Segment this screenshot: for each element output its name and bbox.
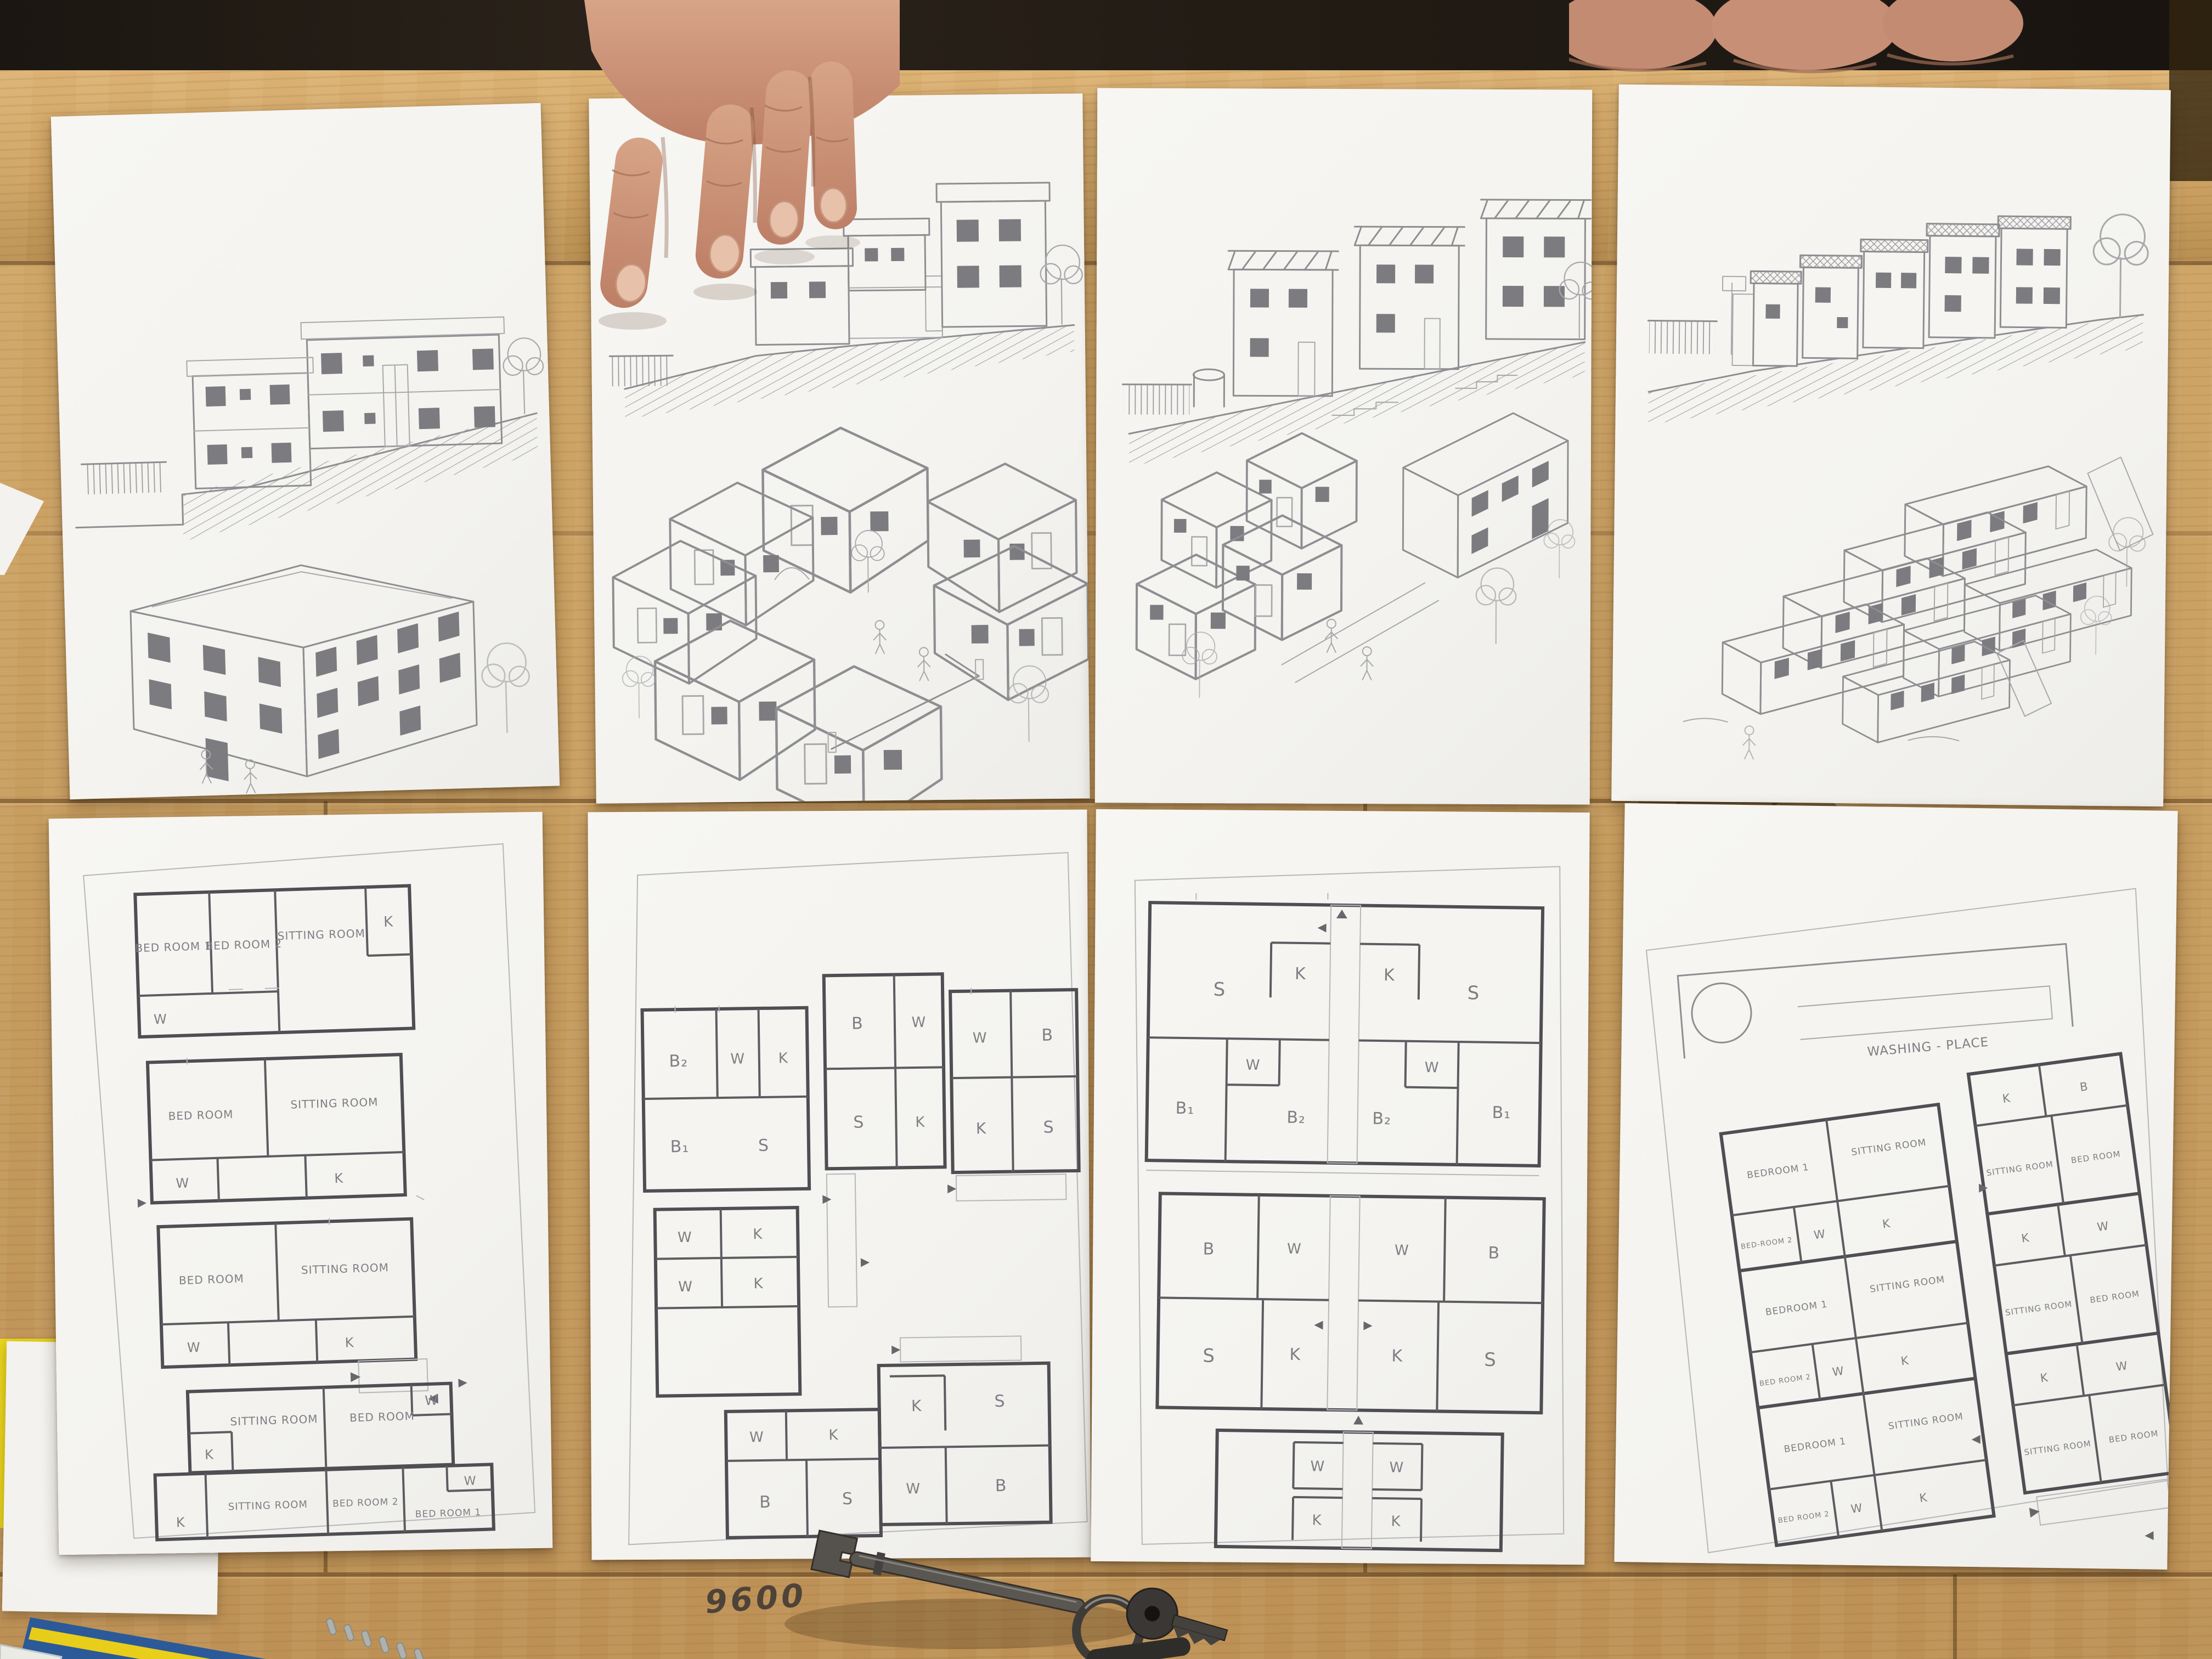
room-label: BED ROOM (2108, 1429, 2159, 1445)
perspective-sketch-1 (129, 559, 532, 798)
hand (527, 0, 900, 362)
room-label: K (753, 1276, 763, 1292)
room-label: K (345, 1335, 354, 1351)
room-label: BEDROOM 1 (1784, 1436, 1847, 1455)
room-label: K (1312, 1512, 1322, 1528)
room-label: K (1384, 966, 1395, 985)
stair (2036, 1479, 2171, 1525)
room-label: K (2039, 1371, 2049, 1385)
room-label: BED-ROOM 2 (1740, 1236, 1793, 1251)
room-label: BED ROOM 2 (1759, 1373, 1812, 1389)
room-label: W (187, 1340, 201, 1356)
room-label: W (1850, 1501, 1864, 1516)
stair (1328, 905, 1361, 1164)
room-label: W (911, 1014, 926, 1031)
room-label: K (1882, 1217, 1892, 1231)
room-label: SITTING ROOM (2023, 1438, 2091, 1457)
sketch-sheet-3 (1095, 88, 1593, 804)
room-label: W (2115, 1359, 2129, 1374)
room-label: K (1295, 964, 1306, 984)
floor-plan-1: BED ROOM 1 BED ROOM 2 SITTING ROOM K W B… (83, 843, 535, 1541)
room-label: BED ROOM (349, 1409, 415, 1425)
room-label: B (1041, 1026, 1053, 1045)
photo-of-architecture-sketches: 9600 (0, 0, 2212, 1659)
isometric-sketch-2 (612, 425, 1090, 803)
stair (827, 1174, 857, 1307)
room-label: SITTING ROOM (1888, 1411, 1964, 1432)
stair (956, 1174, 1066, 1201)
room-label: S (1213, 979, 1226, 1001)
floor-plan-sheet-1: BED ROOM 1 BED ROOM 2 SITTING ROOM K W B… (49, 812, 553, 1555)
room-label: W (1287, 1241, 1302, 1257)
room-label: S (1203, 1345, 1215, 1367)
second-hand-fingers (1569, 0, 2030, 101)
room-label: BEDROOM 1 (1746, 1162, 1810, 1181)
floor-plan-3: S K K S B₁ W B₂ B₂ W B₁ B W W B S K (1126, 861, 1573, 1551)
room-label: B (851, 1014, 864, 1033)
elevation-sketch-1 (71, 316, 548, 544)
room-label: K (911, 1397, 922, 1415)
room-label: K (915, 1114, 925, 1131)
tree-sketch (2093, 214, 2148, 318)
room-label: BED ROOM 1 (415, 1507, 482, 1520)
room-label: SITTING ROOM (1850, 1137, 1927, 1158)
room-label: W (1424, 1059, 1439, 1076)
room-label: S (1484, 1349, 1497, 1371)
room-label: W (425, 1392, 439, 1408)
floor-plan-2: B₂ W K B₁ S B W S K W B K S (619, 853, 1087, 1545)
room-label: W (1395, 1242, 1409, 1259)
room-label: S (853, 1113, 865, 1132)
floor-plan-4: WASHING - PLACE BEDROOM 1 SITTING ROOM B… (1645, 888, 2178, 1554)
room-label: BED ROOM 2 (1778, 1510, 1830, 1525)
room-label: B (995, 1476, 1007, 1496)
room-label: W (906, 1481, 921, 1497)
washing-place: WASHING - PLACE (1678, 944, 2074, 1075)
room-label: W (678, 1279, 693, 1295)
room-label: S (758, 1136, 770, 1155)
room-label: K (1918, 1491, 1928, 1505)
room-label: K (2021, 1231, 2030, 1245)
room-label: S (842, 1489, 854, 1509)
floor-plan-sheet-3: S K K S B₁ W B₂ B₂ W B₁ B W W B S K (1091, 809, 1590, 1565)
room-label: W (1246, 1057, 1261, 1074)
room-label: BED ROOM 2 (205, 937, 283, 952)
room-label: SITTING ROOM (301, 1261, 390, 1277)
table-corner-shadow (2169, 0, 2212, 181)
room-label: K (334, 1171, 344, 1187)
room-label: SITTING ROOM (2005, 1299, 2073, 1318)
room-label: K (205, 1447, 215, 1463)
room-label: W (176, 1175, 190, 1191)
stair (1342, 1432, 1373, 1549)
room-label: BED ROOM 1 (135, 939, 212, 955)
room-label: K (176, 1515, 186, 1531)
room-label: W (749, 1429, 764, 1446)
room-label: B (2079, 1080, 2089, 1094)
room-label: K (828, 1427, 838, 1443)
left-unit-strip: BEDROOM 1 SITTING ROOM BED-ROOM 2 W K BE… (1721, 1104, 1994, 1545)
key-bunch (757, 1520, 1229, 1659)
room-label: SITTING ROOM (228, 1499, 308, 1513)
room-label: W (1389, 1459, 1404, 1476)
room-label: W (2096, 1219, 2110, 1234)
room-label: K (1900, 1354, 1910, 1368)
room-label: BED ROOM (2070, 1149, 2121, 1165)
room-label: BED ROOM (2089, 1289, 2140, 1305)
room-label: B₁ (1175, 1099, 1194, 1118)
sketch-sheet-4 (1611, 84, 2171, 806)
room-label: K (2002, 1091, 2012, 1105)
room-label: B₁ (1492, 1103, 1511, 1122)
room-label: K (753, 1226, 763, 1243)
right-unit-strip: K B SITTING ROOM BED ROOM K W SITTING RO… (1968, 1054, 2178, 1527)
room-label: K (1289, 1345, 1301, 1364)
room-label: W (973, 1030, 988, 1046)
room-label: B₂ (669, 1052, 688, 1071)
room-label: W (678, 1229, 692, 1246)
room-label: K (1391, 1513, 1401, 1530)
floor-plan-sheet-4: WASHING - PLACE BEDROOM 1 SITTING ROOM B… (1614, 803, 2177, 1570)
floor-plan-sheet-2: B₂ W K B₁ S B W S K W B K S (588, 810, 1091, 1560)
room-label: B₂ (1372, 1109, 1391, 1128)
stair (1327, 1196, 1359, 1410)
windows (148, 633, 284, 793)
room-label: B₂ (1286, 1108, 1306, 1127)
room-label: B (1488, 1244, 1500, 1263)
room-label: W (464, 1474, 477, 1488)
room-label: BED ROOM (179, 1272, 244, 1287)
room-label: BED ROOM 2 (332, 1497, 399, 1510)
room-label: K (383, 913, 394, 930)
room-label: BEDROOM 1 (1765, 1299, 1829, 1318)
washing-place-label: WASHING - PLACE (1867, 1035, 1989, 1059)
room-label: S (1467, 982, 1480, 1004)
room-label: S (994, 1392, 1006, 1411)
spiral-notebook (0, 1575, 494, 1659)
room-label: K (976, 1119, 987, 1137)
sketch-sheet-1 (51, 103, 560, 799)
room-label: S (1043, 1118, 1054, 1137)
room-label: W (1310, 1458, 1325, 1475)
room-label: K (778, 1050, 788, 1066)
room-label: W (154, 1011, 168, 1027)
stair (900, 1336, 1022, 1362)
elevation-sketch-4 (1647, 210, 2148, 430)
room-label: SITTING ROOM (1869, 1274, 1945, 1295)
plank-joint (1953, 1575, 1957, 1659)
room-label: W (1813, 1227, 1827, 1242)
room-label: BED ROOM (168, 1108, 233, 1123)
elevation-sketch-3 (1122, 199, 1592, 469)
isometric-sketch-3 (1136, 412, 1575, 699)
room-label: SITTING ROOM (1986, 1159, 2054, 1178)
axonometric-sketch-4 (1683, 453, 2154, 763)
room-label: SITTING ROOM (277, 927, 365, 943)
room-label: B₁ (670, 1137, 689, 1156)
room-label: W (1831, 1364, 1845, 1379)
room-label: B (759, 1493, 771, 1512)
room-label: SITTING ROOM (290, 1095, 379, 1111)
room-label: B (1203, 1240, 1215, 1259)
room-label: K (1391, 1346, 1403, 1365)
room-label: W (730, 1051, 745, 1067)
stair (358, 1359, 428, 1393)
room-label: SITTING ROOM (230, 1412, 318, 1428)
